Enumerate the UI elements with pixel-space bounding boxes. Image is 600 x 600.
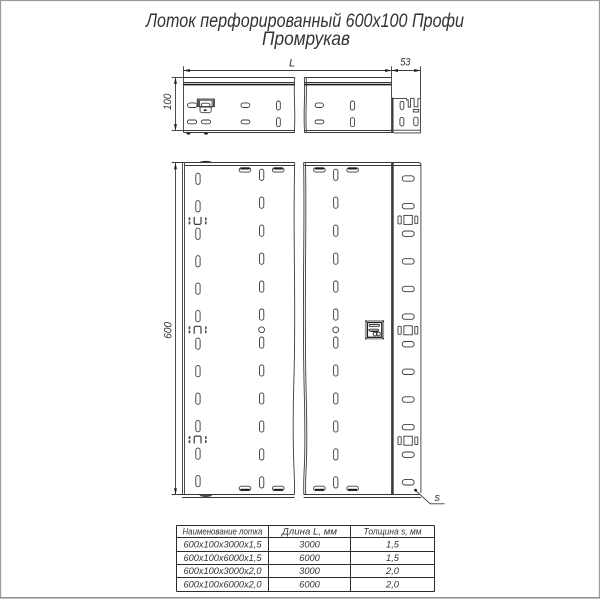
svg-text:L: L	[289, 58, 295, 70]
svg-text:Длина L, мм: Длина L, мм	[281, 526, 338, 536]
svg-text:s: s	[435, 492, 441, 504]
svg-text:600х100х3000х1,5: 600х100х3000х1,5	[184, 539, 263, 549]
svg-text:1,5: 1,5	[386, 539, 400, 549]
svg-text:3000: 3000	[299, 566, 321, 576]
svg-text:6000: 6000	[299, 579, 321, 589]
svg-text:600х100х6000х1,5: 600х100х6000х1,5	[184, 553, 263, 563]
svg-text:6000: 6000	[299, 553, 321, 563]
svg-text:Толщина s, мм: Толщина s, мм	[364, 526, 423, 536]
svg-text:3000: 3000	[299, 539, 321, 549]
svg-text:Наименование лотка: Наименование лотка	[183, 526, 263, 536]
svg-text:600х100х3000х2,0: 600х100х3000х2,0	[184, 566, 263, 576]
svg-text:2,0: 2,0	[385, 566, 400, 576]
svg-text:Промрукав: Промрукав	[262, 29, 350, 50]
svg-text:1,5: 1,5	[386, 553, 400, 563]
svg-text:600х100х6000х2,0: 600х100х6000х2,0	[184, 579, 263, 589]
svg-text:2,0: 2,0	[385, 579, 400, 589]
svg-text:100: 100	[162, 93, 174, 110]
svg-text:600: 600	[162, 321, 174, 339]
svg-text:53: 53	[400, 57, 411, 69]
